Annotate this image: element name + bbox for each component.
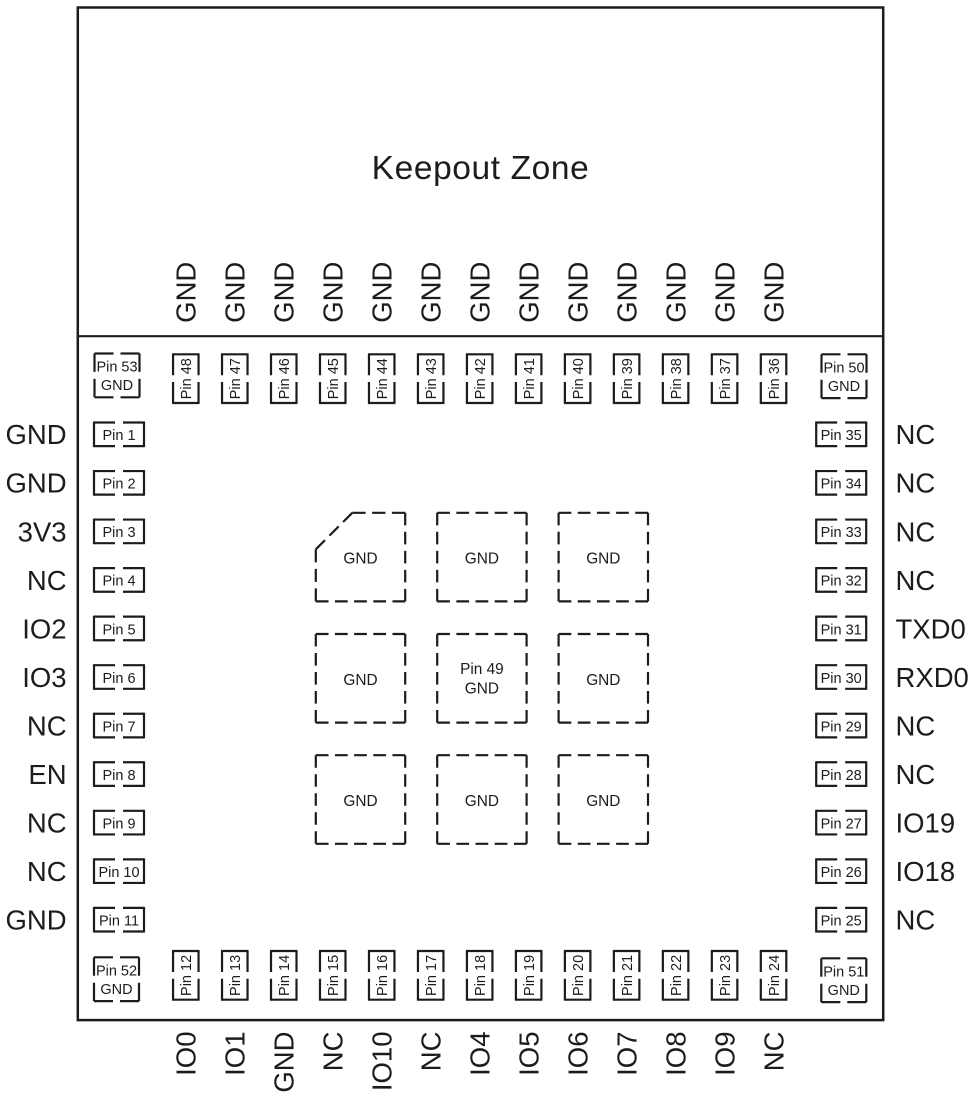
svg-text:NC: NC — [416, 1032, 447, 1072]
svg-text:Pin 12: Pin 12 — [179, 955, 195, 996]
svg-text:IO3: IO3 — [22, 662, 66, 693]
svg-text:Pin 27: Pin 27 — [821, 816, 862, 832]
svg-text:IO7: IO7 — [612, 1032, 643, 1076]
svg-text:Pin 31: Pin 31 — [821, 622, 862, 638]
svg-text:Pin 20: Pin 20 — [571, 955, 587, 996]
svg-text:Pin 18: Pin 18 — [473, 955, 489, 996]
svg-text:GND: GND — [586, 672, 620, 689]
svg-text:NC: NC — [27, 856, 67, 887]
svg-text:GND: GND — [828, 379, 860, 395]
svg-text:Pin 4: Pin 4 — [102, 574, 135, 590]
svg-text:GND: GND — [416, 262, 447, 323]
svg-text:GND: GND — [465, 793, 499, 810]
svg-text:IO6: IO6 — [563, 1032, 594, 1076]
svg-text:Pin 36: Pin 36 — [767, 358, 783, 399]
svg-text:GND: GND — [100, 982, 132, 998]
svg-text:Pin 35: Pin 35 — [821, 428, 862, 444]
svg-text:IO5: IO5 — [514, 1032, 545, 1076]
svg-text:GND: GND — [5, 468, 66, 499]
svg-text:NC: NC — [27, 565, 67, 596]
svg-text:Pin 29: Pin 29 — [821, 719, 862, 735]
svg-text:IO0: IO0 — [171, 1032, 202, 1076]
svg-text:NC: NC — [896, 710, 936, 741]
svg-text:GND: GND — [343, 551, 377, 568]
svg-text:GND: GND — [759, 262, 790, 323]
svg-text:NC: NC — [896, 516, 936, 547]
svg-text:GND: GND — [828, 983, 860, 999]
svg-text:GND: GND — [710, 262, 741, 323]
svg-text:GND: GND — [465, 681, 499, 698]
svg-text:Pin 9: Pin 9 — [102, 816, 135, 832]
svg-text:Pin 2: Pin 2 — [102, 477, 135, 493]
svg-text:Pin 33: Pin 33 — [821, 525, 862, 541]
svg-text:Pin 32: Pin 32 — [821, 574, 862, 590]
svg-text:Pin 37: Pin 37 — [718, 358, 734, 399]
svg-text:Pin 30: Pin 30 — [821, 671, 862, 687]
svg-text:Pin 52: Pin 52 — [96, 963, 137, 979]
svg-text:IO1: IO1 — [220, 1032, 251, 1076]
svg-text:TXD0: TXD0 — [896, 613, 966, 644]
svg-text:Pin 23: Pin 23 — [718, 955, 734, 996]
svg-text:NC: NC — [896, 759, 936, 790]
svg-text:Pin 21: Pin 21 — [620, 955, 636, 996]
svg-text:Pin 45: Pin 45 — [326, 358, 342, 399]
svg-text:Pin 46: Pin 46 — [277, 358, 293, 399]
svg-text:Pin 3: Pin 3 — [102, 525, 135, 541]
svg-text:GND: GND — [563, 262, 594, 323]
svg-text:NC: NC — [318, 1032, 349, 1072]
svg-text:EN: EN — [28, 759, 66, 790]
svg-text:Pin 42: Pin 42 — [473, 358, 489, 399]
svg-text:GND: GND — [586, 551, 620, 568]
svg-text:GND: GND — [5, 905, 66, 936]
svg-text:NC: NC — [759, 1032, 790, 1072]
svg-text:IO19: IO19 — [896, 808, 956, 839]
svg-text:GND: GND — [612, 262, 643, 323]
svg-text:GND: GND — [661, 262, 692, 323]
svg-text:IO4: IO4 — [465, 1032, 496, 1076]
svg-text:Pin 24: Pin 24 — [767, 955, 783, 996]
svg-text:Pin 40: Pin 40 — [571, 358, 587, 399]
svg-text:NC: NC — [896, 419, 936, 450]
svg-text:Pin 43: Pin 43 — [424, 358, 440, 399]
svg-text:GND: GND — [5, 419, 66, 450]
svg-text:Pin 7: Pin 7 — [102, 719, 135, 735]
svg-text:Pin 11: Pin 11 — [99, 914, 139, 930]
svg-text:Pin 44: Pin 44 — [375, 358, 391, 399]
svg-text:Pin 41: Pin 41 — [522, 358, 538, 399]
svg-text:Pin 49: Pin 49 — [460, 661, 504, 678]
svg-text:Pin 6: Pin 6 — [102, 671, 135, 687]
svg-text:RXD0: RXD0 — [896, 662, 969, 693]
svg-text:IO10: IO10 — [367, 1032, 398, 1092]
svg-text:GND: GND — [269, 1032, 300, 1093]
svg-text:GND: GND — [343, 793, 377, 810]
svg-text:Pin 38: Pin 38 — [669, 358, 685, 399]
svg-text:Pin 51: Pin 51 — [823, 964, 864, 980]
svg-text:Pin 17: Pin 17 — [424, 955, 440, 996]
svg-text:Pin 26: Pin 26 — [821, 865, 862, 881]
svg-text:Pin 8: Pin 8 — [102, 768, 135, 784]
svg-text:NC: NC — [896, 905, 936, 936]
svg-text:NC: NC — [896, 565, 936, 596]
svg-text:Pin 5: Pin 5 — [102, 622, 135, 638]
svg-text:Keepout Zone: Keepout Zone — [372, 150, 590, 187]
svg-text:Pin 53: Pin 53 — [96, 360, 137, 376]
svg-text:Pin 15: Pin 15 — [326, 955, 342, 996]
svg-text:GND: GND — [171, 262, 202, 323]
svg-text:Pin 47: Pin 47 — [228, 358, 244, 399]
svg-text:Pin 16: Pin 16 — [375, 955, 391, 996]
svg-text:IO2: IO2 — [22, 613, 66, 644]
svg-text:GND: GND — [101, 378, 133, 394]
svg-text:GND: GND — [514, 262, 545, 323]
svg-text:Pin 28: Pin 28 — [821, 768, 862, 784]
svg-text:GND: GND — [367, 262, 398, 323]
svg-text:GND: GND — [465, 551, 499, 568]
svg-text:3V3: 3V3 — [18, 516, 67, 547]
svg-text:Pin 25: Pin 25 — [821, 914, 862, 930]
svg-text:GND: GND — [586, 793, 620, 810]
svg-text:IO8: IO8 — [661, 1032, 692, 1076]
svg-text:GND: GND — [343, 672, 377, 689]
svg-text:GND: GND — [269, 262, 300, 323]
svg-text:Pin 1: Pin 1 — [102, 428, 135, 444]
svg-text:Pin 39: Pin 39 — [620, 358, 636, 399]
svg-text:Pin 50: Pin 50 — [823, 360, 864, 376]
svg-text:Pin 34: Pin 34 — [821, 477, 862, 493]
svg-text:NC: NC — [896, 468, 936, 499]
svg-text:Pin 48: Pin 48 — [179, 358, 195, 399]
svg-text:Pin 14: Pin 14 — [277, 955, 293, 996]
svg-text:GND: GND — [465, 262, 496, 323]
svg-text:IO18: IO18 — [896, 856, 956, 887]
svg-text:GND: GND — [220, 262, 251, 323]
svg-text:Pin 22: Pin 22 — [669, 955, 685, 996]
svg-text:Pin 10: Pin 10 — [98, 865, 139, 881]
svg-text:GND: GND — [318, 262, 349, 323]
svg-text:NC: NC — [27, 710, 67, 741]
svg-text:IO9: IO9 — [710, 1032, 741, 1076]
svg-text:Pin 19: Pin 19 — [522, 955, 538, 996]
svg-text:Pin 13: Pin 13 — [228, 955, 244, 996]
svg-text:NC: NC — [27, 808, 67, 839]
